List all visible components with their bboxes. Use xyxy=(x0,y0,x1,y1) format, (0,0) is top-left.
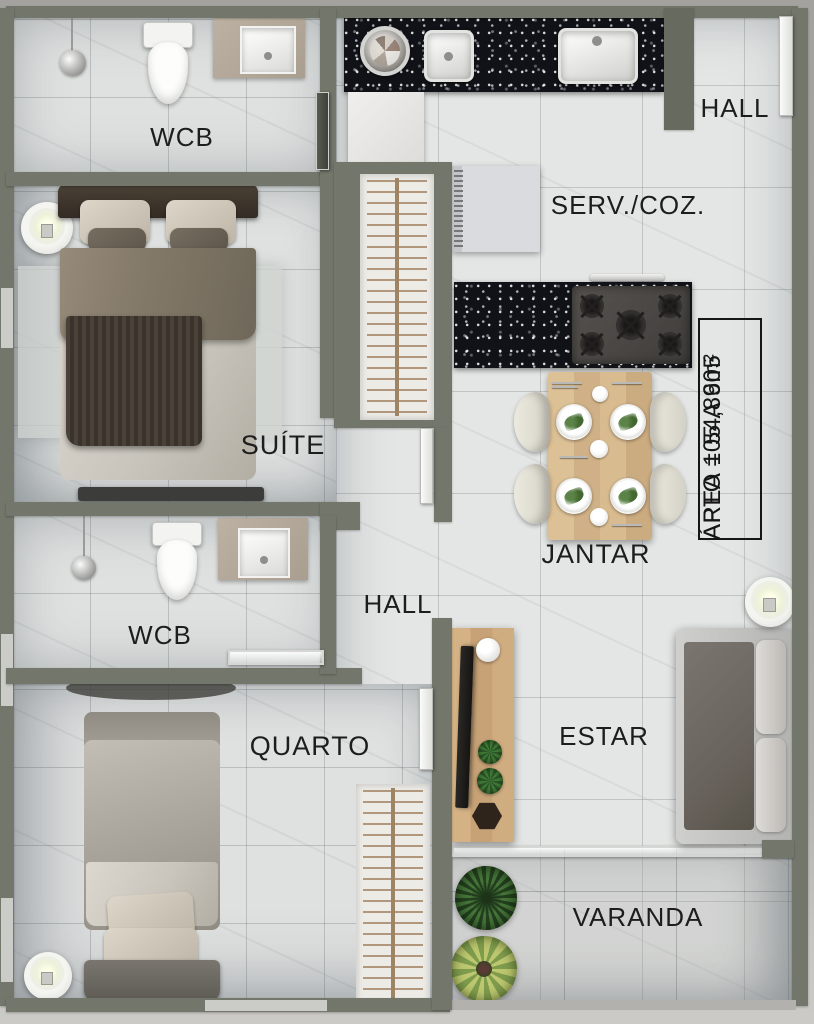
wall-passage xyxy=(434,428,452,522)
burner-icon xyxy=(658,332,682,356)
room-label-jantar: JANTAR xyxy=(516,539,676,570)
kitchen-cabinet xyxy=(348,92,424,170)
burner-icon xyxy=(580,332,604,356)
decor-sphere xyxy=(476,638,500,662)
closet-rod xyxy=(395,178,399,416)
moss-ball-decor xyxy=(477,768,503,794)
wcb-suite-door xyxy=(316,92,329,170)
burner-icon xyxy=(616,310,646,340)
room-label-varanda: VARANDA xyxy=(548,902,728,933)
shower-arm xyxy=(83,516,85,558)
quarto-bed xyxy=(84,712,220,1002)
sink-icon xyxy=(238,528,290,578)
quarto-wardrobe xyxy=(356,784,430,1006)
plate-icon xyxy=(610,478,646,514)
room-label-serv-coz: SERV./COZ. xyxy=(538,190,718,221)
laundry-clothes xyxy=(370,36,400,66)
room-label-estar: ESTAR xyxy=(534,721,674,752)
wall-quarto-estar xyxy=(432,618,452,1010)
plant-icon xyxy=(455,866,517,930)
varanda-railing xyxy=(450,1000,796,1010)
floor-plan: WCB SUÍTE WCB HALL QUARTO SERV./COZ. HAL… xyxy=(0,0,814,1024)
window xyxy=(1,898,13,982)
bowl-icon xyxy=(590,440,608,458)
wcb-social-glass-door xyxy=(228,650,324,665)
plate-garnish xyxy=(616,412,640,432)
room-label-wcb-social: WCB xyxy=(110,620,210,651)
faucet-icon xyxy=(592,36,602,46)
sofa-seat xyxy=(684,642,754,830)
wall-wcb1-suite xyxy=(6,172,336,186)
cooktop-icon xyxy=(572,286,690,364)
fridge-coil xyxy=(454,170,463,248)
window xyxy=(1,288,13,348)
room-label-hall-entry: HALL xyxy=(675,93,795,124)
quarto-door xyxy=(419,688,433,770)
shower-icon xyxy=(60,50,86,76)
dining-chair xyxy=(514,392,550,452)
oven-handle xyxy=(590,274,664,281)
quarto-bed-footboard xyxy=(84,960,220,1002)
room-label-wcb-suite: WCB xyxy=(132,122,232,153)
suite-bed-throw xyxy=(66,316,202,446)
sink-icon xyxy=(240,26,296,74)
wall-suite-wcb2 xyxy=(6,502,338,516)
suite-dresser xyxy=(78,487,264,501)
sofa xyxy=(676,628,794,844)
cutlery-icon xyxy=(552,386,578,388)
hall-closet xyxy=(360,174,434,420)
bowl-icon xyxy=(592,386,608,402)
burner-icon xyxy=(658,294,682,318)
cutlery-icon xyxy=(612,382,642,384)
varanda-sliding-door xyxy=(452,846,794,857)
sofa-cushion xyxy=(756,738,786,832)
plate-garnish xyxy=(616,486,640,506)
sofa-cushion xyxy=(756,640,786,734)
faucet-icon xyxy=(260,556,268,564)
wall-varanda-stub xyxy=(762,840,794,858)
plate-icon xyxy=(556,404,592,440)
apartment-info-text: APTO 105 A 605 ÁREA = 54,89m² xyxy=(698,318,762,540)
burner-icon xyxy=(580,294,604,318)
wall-wcb2-quarto xyxy=(6,668,362,684)
cutlery-icon xyxy=(612,524,642,526)
plate-icon xyxy=(610,404,646,440)
faucet-icon xyxy=(444,52,453,61)
cutlery-icon xyxy=(560,456,588,458)
suite-lamp-base xyxy=(41,224,53,238)
fridge-icon xyxy=(452,166,540,252)
wardrobe-rod xyxy=(391,788,395,1002)
dining-chair xyxy=(514,464,550,524)
bowl-icon xyxy=(590,508,608,526)
room-label-quarto: QUARTO xyxy=(230,731,390,762)
moss-ball-decor xyxy=(478,740,502,764)
plate-garnish xyxy=(562,486,586,506)
cutlery-icon xyxy=(552,382,582,384)
wall-right xyxy=(792,8,808,1006)
window xyxy=(205,1000,327,1011)
plant-icon xyxy=(451,936,517,1002)
plate-garnish xyxy=(562,412,586,432)
room-label-hall-internal: HALL xyxy=(338,589,458,620)
suite-door xyxy=(420,428,433,504)
shower-arm xyxy=(71,16,73,54)
room-label-suite: SUÍTE xyxy=(213,430,353,461)
shower-icon xyxy=(72,556,96,580)
apartment-area: ÁREA = 54,89m² xyxy=(698,354,728,540)
quarto-lamp-base xyxy=(41,972,53,985)
estar-lamp-base xyxy=(763,598,776,612)
plate-icon xyxy=(556,478,592,514)
faucet-icon xyxy=(264,52,272,60)
